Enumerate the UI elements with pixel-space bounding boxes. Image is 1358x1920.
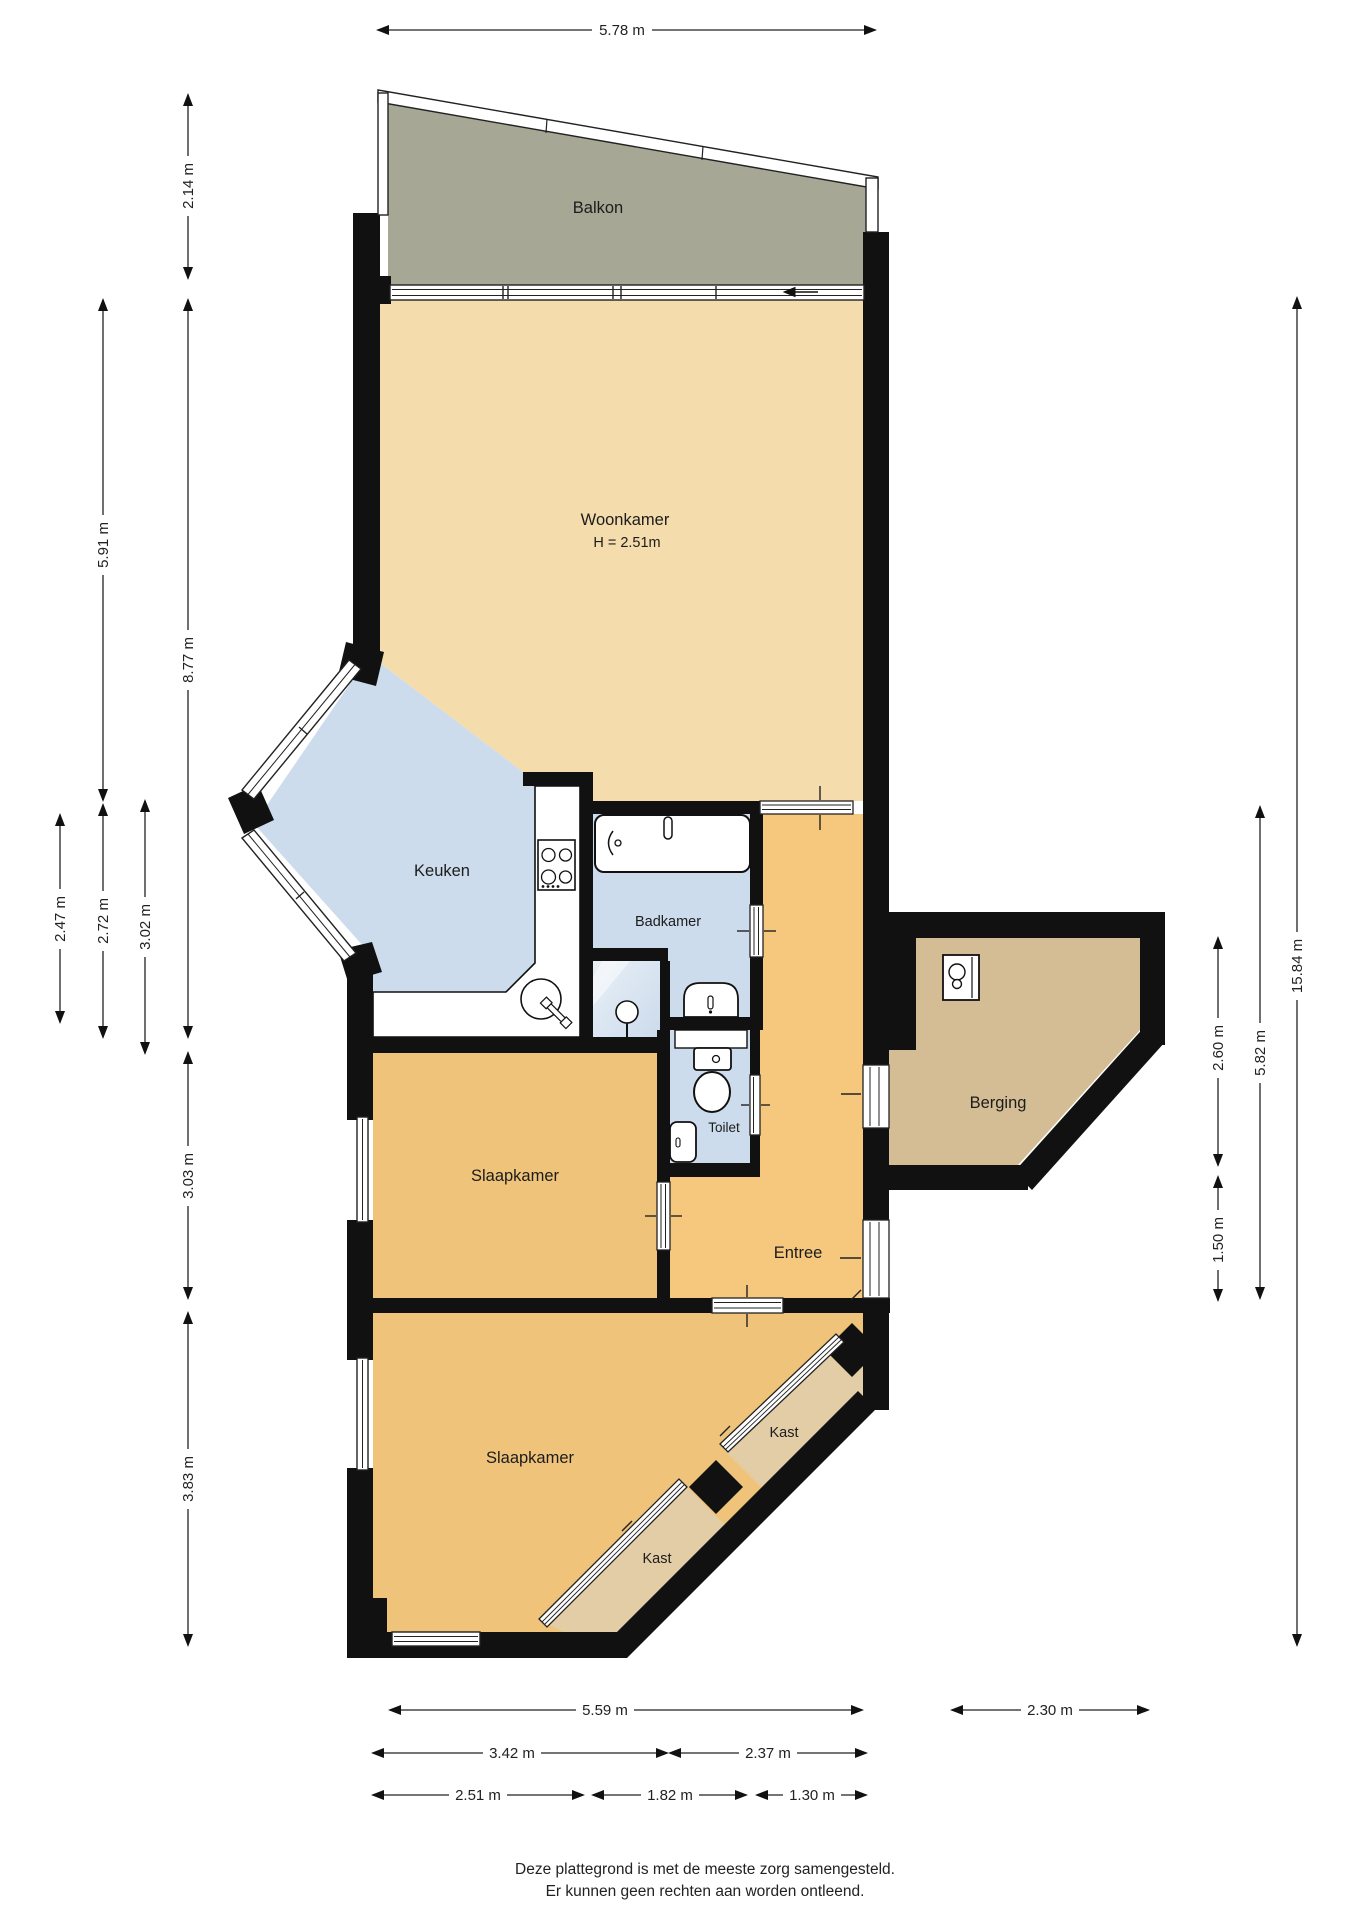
washbasin-icon: [684, 983, 738, 1017]
room-label-slaapkamer-2: Slaapkamer: [486, 1449, 575, 1467]
opening-woonkamer-entree: [760, 801, 853, 814]
door-badkamer: [750, 905, 763, 957]
disclaimer-line-1: Deze plattegrond is met de meeste zorg s…: [515, 1861, 895, 1878]
toilet-shelf: [675, 1030, 747, 1048]
dimension-label: 5.91 m: [95, 522, 112, 568]
dimension-label: 1.30 m: [789, 1787, 835, 1804]
dimension-label: 2.47 m: [52, 896, 69, 942]
window-slaapkamer-2-south: [392, 1632, 480, 1646]
disclaimer-line-2: Er kunnen geen rechten aan worden ontlee…: [546, 1883, 865, 1900]
hand-basin-icon: [670, 1122, 696, 1162]
ceiling-height-label: H = 2.51m: [593, 535, 660, 551]
door-front: [863, 1220, 889, 1298]
dimension-label: 2.60 m: [1210, 1025, 1227, 1071]
room-fills: [254, 102, 1140, 1654]
dimension-label: 3.42 m: [489, 1745, 535, 1762]
toilet-icon: [694, 1048, 731, 1112]
door-slaapkamer-2: [712, 1298, 783, 1313]
room-label-woonkamer: Woonkamer: [581, 511, 670, 529]
stove-icon: [538, 840, 575, 890]
dimension-label: 1.82 m: [647, 1787, 693, 1804]
door-slaapkamer-1: [657, 1182, 670, 1250]
room-label-balkon: Balkon: [573, 199, 623, 217]
room-label-kast-1: Kast: [642, 1551, 671, 1567]
balcony-side-wall: [866, 178, 878, 232]
dimension-label: 2.51 m: [455, 1787, 501, 1804]
dimension-label: 2.14 m: [180, 163, 197, 209]
floorplan-canvas: Balkon Woonkamer H = 2.51m Keuken Badkam…: [0, 0, 1358, 1920]
floorplan-page: Balkon Woonkamer H = 2.51m Keuken Badkam…: [0, 0, 1358, 1920]
room-label-toilet: Toilet: [708, 1120, 740, 1135]
dimension-label: 2.30 m: [1027, 1702, 1073, 1719]
room-label-kast-2: Kast: [769, 1425, 798, 1441]
dimension-label: 5.82 m: [1252, 1030, 1269, 1076]
dimension-label: 1.50 m: [1210, 1217, 1227, 1263]
door-toilet: [750, 1075, 760, 1135]
room-label-badkamer: Badkamer: [635, 914, 701, 930]
washing-machine-icon: [943, 955, 979, 1000]
dimension-label: 5.78 m: [599, 22, 645, 39]
door-berging: [863, 1065, 889, 1128]
room-balkon: [388, 102, 866, 285]
room-label-entree: Entree: [774, 1244, 823, 1262]
dimension-label: 15.84 m: [1289, 939, 1306, 993]
balcony-side-wall: [378, 93, 388, 215]
room-label-slaapkamer-1: Slaapkamer: [471, 1167, 560, 1185]
bathtub-icon: [595, 815, 750, 872]
dimension-label: 8.77 m: [180, 637, 197, 683]
dimension-label: 5.59 m: [582, 1702, 628, 1719]
dimension-label: 3.83 m: [180, 1456, 197, 1502]
room-berging: [888, 938, 1140, 1165]
room-label-keuken: Keuken: [414, 862, 470, 880]
dimension-label: 3.03 m: [180, 1153, 197, 1199]
dimension-label: 2.37 m: [745, 1745, 791, 1762]
room-label-berging: Berging: [970, 1094, 1027, 1112]
dimension-label: 3.02 m: [137, 904, 154, 950]
dimension-label: 2.72 m: [95, 898, 112, 944]
